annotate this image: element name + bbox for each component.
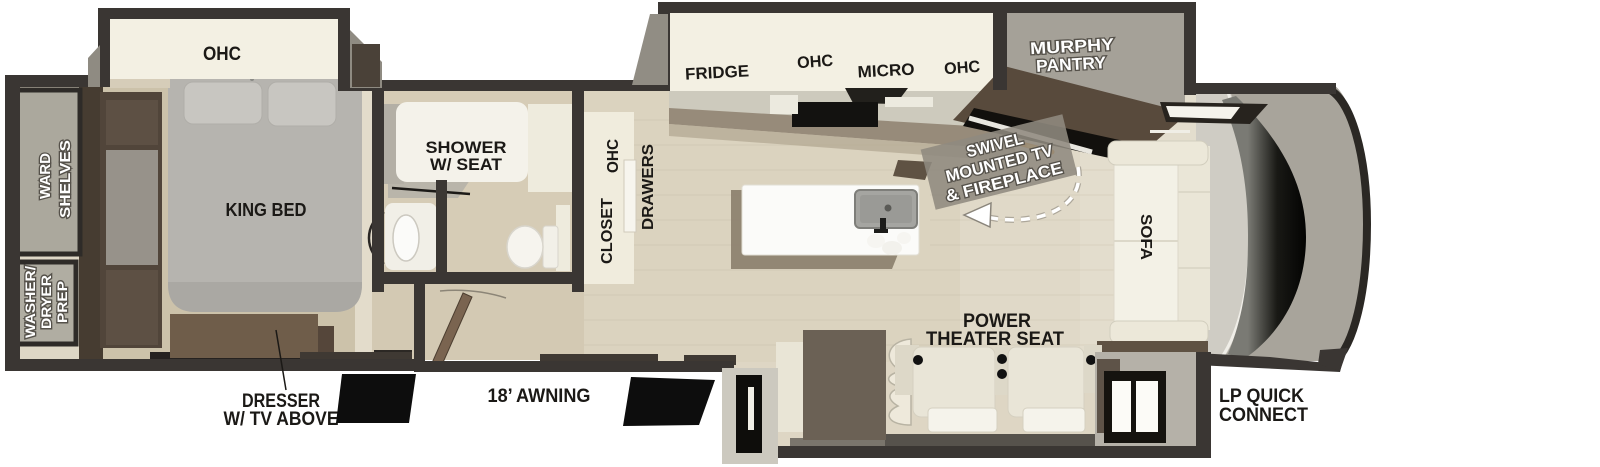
svg-text:W/ SEAT: W/ SEAT (430, 156, 502, 174)
svg-text:OHC: OHC (605, 139, 622, 173)
svg-text:18’ AWNING: 18’ AWNING (488, 386, 591, 407)
svg-text:MICRO: MICRO (857, 61, 915, 82)
svg-text:SHOWER: SHOWER (426, 139, 507, 157)
svg-text:KING BED: KING BED (226, 200, 307, 220)
svg-text:OHC: OHC (797, 52, 834, 72)
svg-text:SHELVES: SHELVES (57, 140, 74, 218)
svg-text:PANTRY: PANTRY (1036, 53, 1108, 76)
svg-text:CLOSET: CLOSET (599, 197, 616, 264)
svg-text:W/ TV ABOVE: W/ TV ABOVE (224, 409, 339, 430)
svg-text:OHC: OHC (203, 44, 241, 65)
svg-text:SOFA: SOFA (1137, 214, 1154, 260)
svg-text:PREP: PREP (55, 281, 70, 323)
svg-text:WARD: WARD (37, 153, 54, 199)
svg-text:DRAWERS: DRAWERS (640, 144, 657, 230)
svg-text:THEATER SEAT: THEATER SEAT (926, 329, 1064, 350)
svg-text:LP QUICK: LP QUICK (1219, 386, 1304, 407)
svg-text:OHC: OHC (944, 58, 981, 78)
svg-text:WASHER/: WASHER/ (23, 266, 38, 338)
svg-text:FRIDGE: FRIDGE (685, 62, 750, 83)
svg-text:CONNECT: CONNECT (1219, 405, 1308, 426)
svg-text:DRYER: DRYER (39, 275, 54, 329)
